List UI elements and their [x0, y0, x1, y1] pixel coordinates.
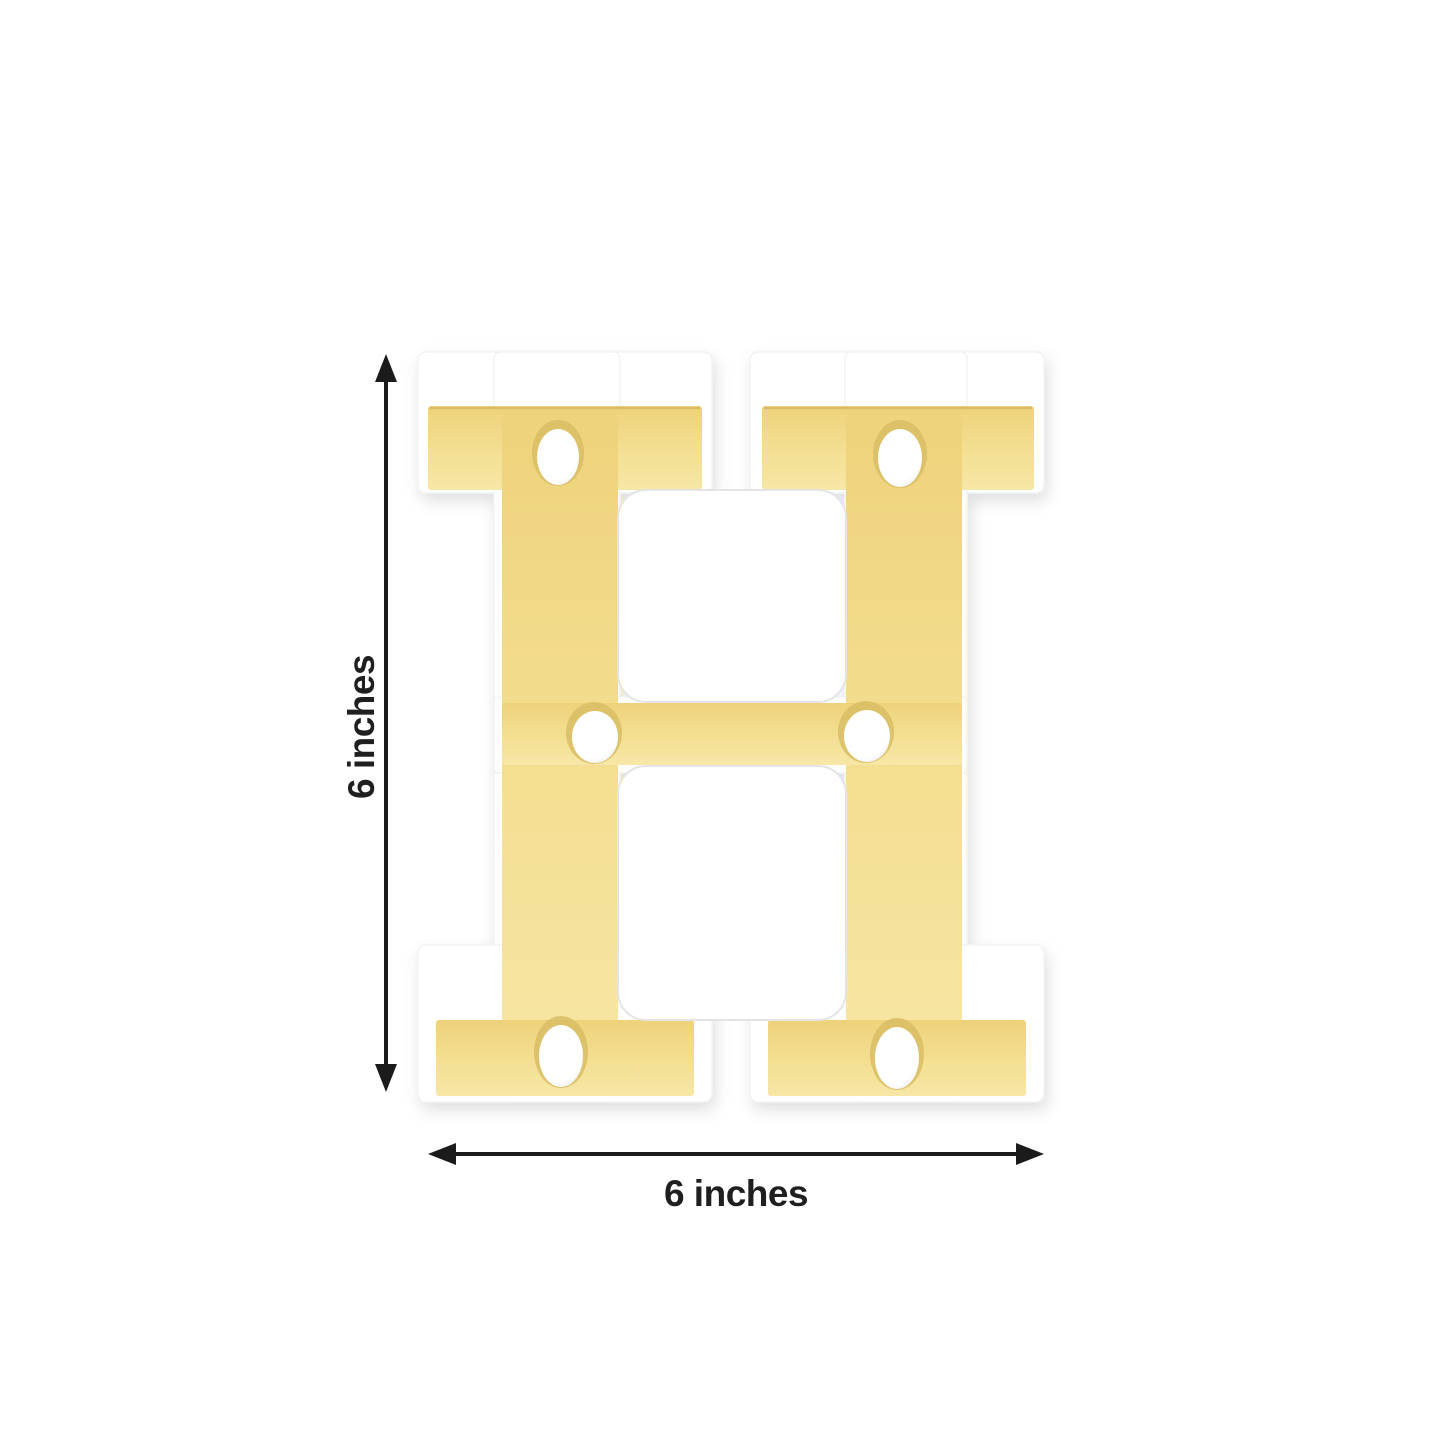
led-bulb-bottom-left: [534, 1016, 588, 1088]
led-dome: [539, 1025, 583, 1087]
led-bulb-bottom-right: [870, 1018, 924, 1090]
led-bulb-top-right: [873, 420, 927, 488]
height-arrowhead-top: [375, 354, 397, 382]
width-arrowhead-right: [1016, 1143, 1044, 1165]
led-dome: [537, 429, 579, 485]
led-bulb-middle-left: [566, 702, 622, 764]
led-dome: [572, 711, 618, 763]
width-dimension: 6 inches: [428, 1143, 1044, 1214]
height-arrowhead-bottom: [375, 1064, 397, 1092]
lower-counter: [618, 766, 846, 1020]
led-dome: [844, 710, 890, 762]
marquee-letter-photo: 6 inches 6 inches: [0, 0, 1445, 1445]
width-arrowhead-left: [428, 1143, 456, 1165]
led-dome: [878, 429, 922, 487]
led-bulb-middle-right: [838, 701, 894, 763]
width-arrow-label: 6 inches: [664, 1173, 808, 1214]
upper-counter: [618, 490, 846, 702]
height-arrow-label: 6 inches: [341, 655, 382, 799]
led-dome: [875, 1027, 919, 1089]
led-bulb-top-left: [532, 420, 584, 486]
product-image: 6 inches 6 inches: [0, 0, 1445, 1445]
height-dimension: 6 inches: [341, 354, 397, 1092]
